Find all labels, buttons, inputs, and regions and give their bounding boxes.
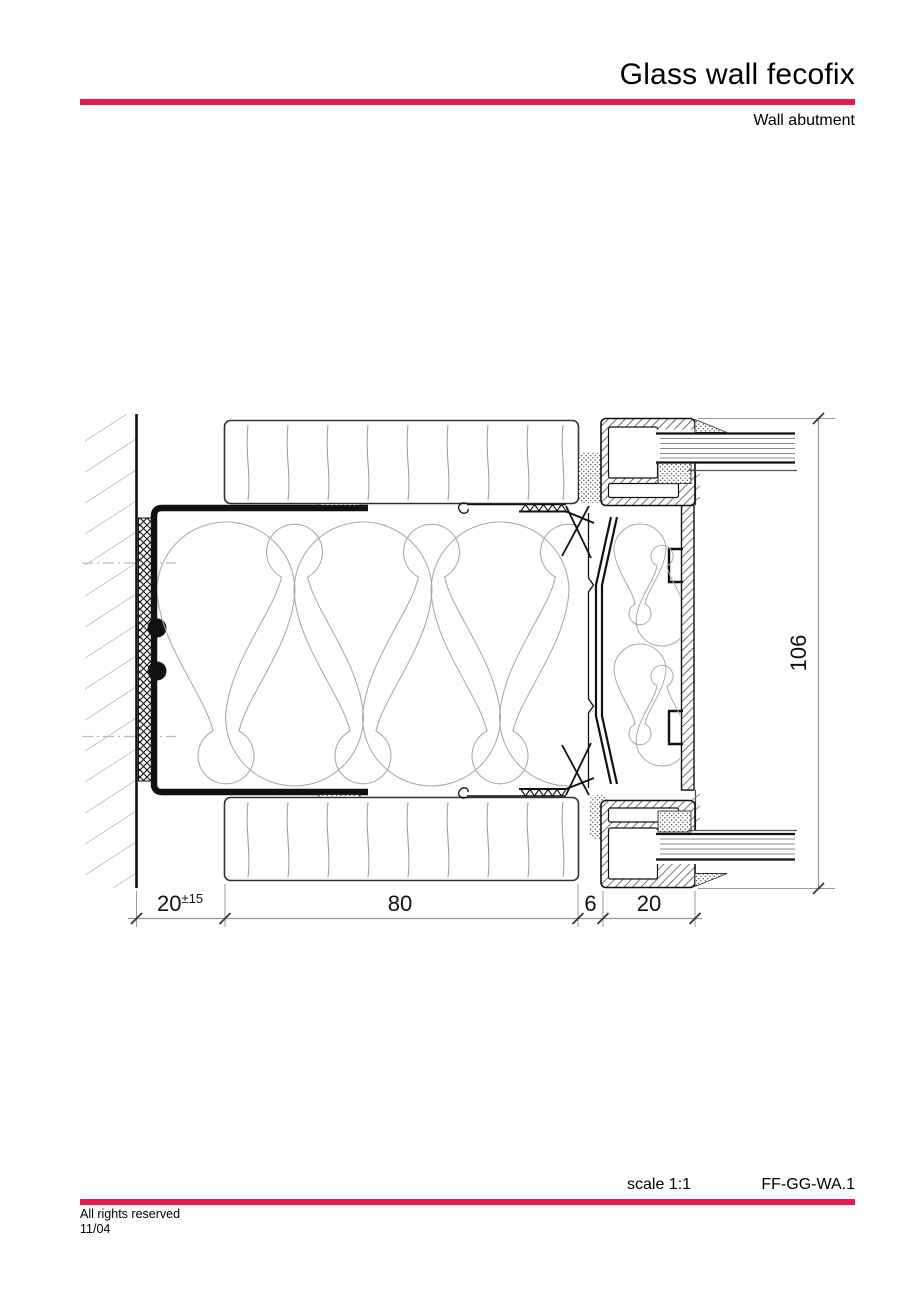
mullion-insulation	[614, 524, 688, 766]
fixing-bump	[148, 662, 167, 681]
dim-label-width: 80	[388, 891, 412, 916]
section-drawing: 20±15 80 6 20 106	[0, 0, 919, 1301]
insulation-batt-top	[225, 421, 579, 504]
clamp-arms	[562, 743, 591, 795]
sealant-wedge	[695, 420, 727, 433]
mineral-wool-infill	[157, 522, 638, 786]
wall-hatch	[82, 414, 176, 888]
drawing-number: FF-GG-WA.1	[761, 1176, 855, 1194]
glazing-gasket	[658, 463, 691, 484]
dim-label-joint: 6	[584, 891, 596, 916]
serrated-gasket	[521, 790, 566, 797]
insulation-batt-bottom	[225, 798, 579, 881]
drawing-sheet: Glass wall fecofix Wall abutment	[0, 0, 919, 1301]
sealant-wedge	[695, 874, 727, 887]
sealant-strip	[139, 518, 152, 781]
fixing-bump	[148, 619, 167, 638]
dim-label-frame: 20	[637, 891, 661, 916]
footer-rule	[80, 1199, 855, 1205]
dim-label-offset: 20±15	[157, 891, 203, 916]
scale-label: scale 1:1	[627, 1176, 691, 1194]
revision-date: 11/04	[80, 1222, 110, 1236]
mullion-profile	[589, 470, 701, 831]
hook-clip	[459, 788, 469, 798]
hook-clip	[459, 503, 469, 513]
clamp-bow	[596, 517, 617, 784]
serrated-gasket	[521, 505, 566, 512]
dim-label-height: 106	[786, 635, 811, 672]
glazing-carrier-top	[459, 503, 594, 558]
mullion-face-wall	[682, 505, 695, 790]
glazing-gasket	[658, 811, 691, 832]
copyright-note: All rights reserved	[80, 1207, 180, 1221]
clamp-arms	[562, 506, 591, 558]
dimension-bottom: 20±15 80 6 20	[128, 884, 702, 927]
dimension-height: 106	[698, 413, 835, 894]
glazing-carrier-bottom	[459, 743, 594, 798]
